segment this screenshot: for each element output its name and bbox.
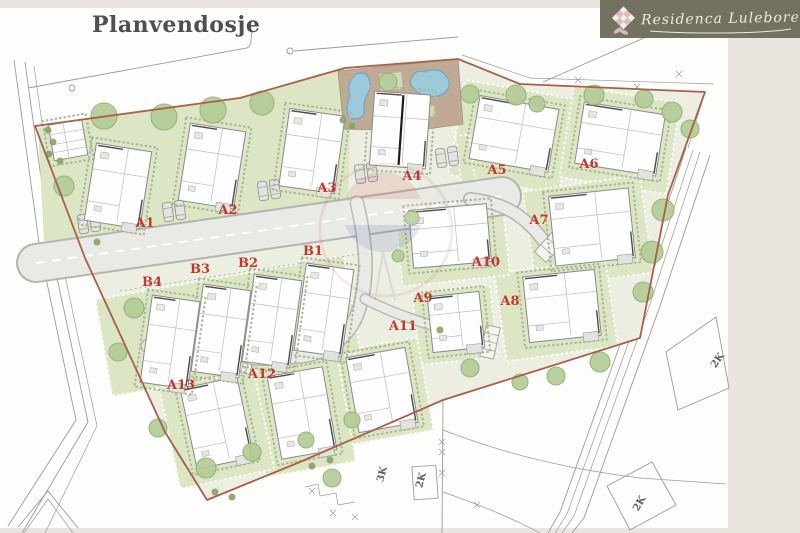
building-label-A3: A3 — [316, 181, 336, 196]
survey-x-mark — [474, 502, 480, 508]
brand-name: Residenca Lulebore — [641, 10, 800, 29]
survey-x-mark — [676, 71, 682, 77]
lattice-flower-icon — [610, 2, 636, 36]
bush-icon — [45, 127, 52, 134]
survey-x-mark — [309, 488, 315, 494]
tree-icon — [392, 250, 404, 262]
building-footprint-A7 — [543, 183, 641, 272]
building-label-B3: B3 — [190, 262, 210, 277]
tree-icon — [590, 352, 610, 372]
tree-icon — [529, 96, 545, 112]
building-label-A8: A8 — [499, 294, 519, 309]
building-label-B1: B1 — [303, 244, 323, 259]
survey-x-mark — [330, 510, 336, 516]
parcel-label-3K-0: 3K — [375, 465, 390, 483]
tree-icon — [109, 343, 127, 361]
bush-icon — [309, 463, 316, 470]
parcel-label-2K-1: 2K — [414, 471, 429, 489]
building-footprint-A2 — [173, 117, 252, 214]
building-label-A7: A7 — [528, 213, 548, 228]
tree-icon — [379, 73, 397, 91]
survey-x-mark — [439, 449, 445, 455]
tree-icon — [243, 443, 261, 461]
parcel-label-2K-2: 2K — [709, 351, 727, 370]
tree-icon — [461, 85, 479, 103]
tree-icon — [344, 412, 360, 428]
building-label-B4: B4 — [142, 275, 162, 290]
page-title: Planvendosje — [92, 12, 260, 38]
tree-icon — [641, 241, 663, 263]
tree-icon — [506, 85, 526, 105]
bush-icon — [437, 327, 444, 334]
tree-icon — [547, 367, 565, 385]
tree-icon — [635, 90, 653, 108]
bush-icon — [229, 494, 236, 501]
tree-icon — [323, 469, 341, 487]
tree-icon — [461, 359, 479, 377]
building-footprint-A4 — [364, 86, 436, 174]
building-label-A12: A12 — [247, 367, 276, 382]
parcel-label-2K-3: 2K — [631, 494, 649, 513]
bush-icon — [57, 158, 64, 165]
plan-canvas: A1A2A3A4A5A6A7A8A9A10A11A12A13B1B2B3B4 3… — [0, 0, 800, 533]
bush-icon — [50, 139, 57, 146]
building-label-B2: B2 — [238, 256, 258, 271]
survey-x-mark — [439, 439, 445, 445]
tree-icon — [196, 458, 216, 478]
building-label-A11: A11 — [388, 319, 417, 334]
tree-icon — [149, 419, 167, 437]
building-label-A10: A10 — [471, 255, 500, 270]
building-label-A13: A13 — [166, 378, 195, 393]
bush-icon — [94, 239, 101, 246]
building-label-A5: A5 — [486, 163, 506, 178]
tree-icon — [298, 432, 314, 448]
survey-x-mark — [352, 514, 358, 520]
tree-icon — [124, 298, 144, 318]
bush-icon — [340, 117, 347, 124]
flourish-underline — [648, 28, 793, 34]
building-label-A1: A1 — [134, 216, 154, 231]
bush-icon — [327, 457, 334, 464]
bush-icon — [212, 489, 219, 496]
brand-banner: Residenca Lulebore — [600, 0, 800, 38]
building-label-A4: A4 — [401, 169, 421, 184]
building-label-A2: A2 — [217, 203, 237, 218]
site-plan-sheet: A1A2A3A4A5A6A7A8A9A10A11A12A13B1B2B3B4 3… — [0, 0, 800, 533]
building-label-A9: A9 — [412, 291, 432, 306]
building-label-A6: A6 — [578, 157, 598, 172]
survey-x-mark — [575, 77, 581, 83]
bush-icon — [349, 123, 356, 130]
building-footprint-A8 — [517, 264, 606, 348]
tree-icon — [662, 102, 682, 122]
